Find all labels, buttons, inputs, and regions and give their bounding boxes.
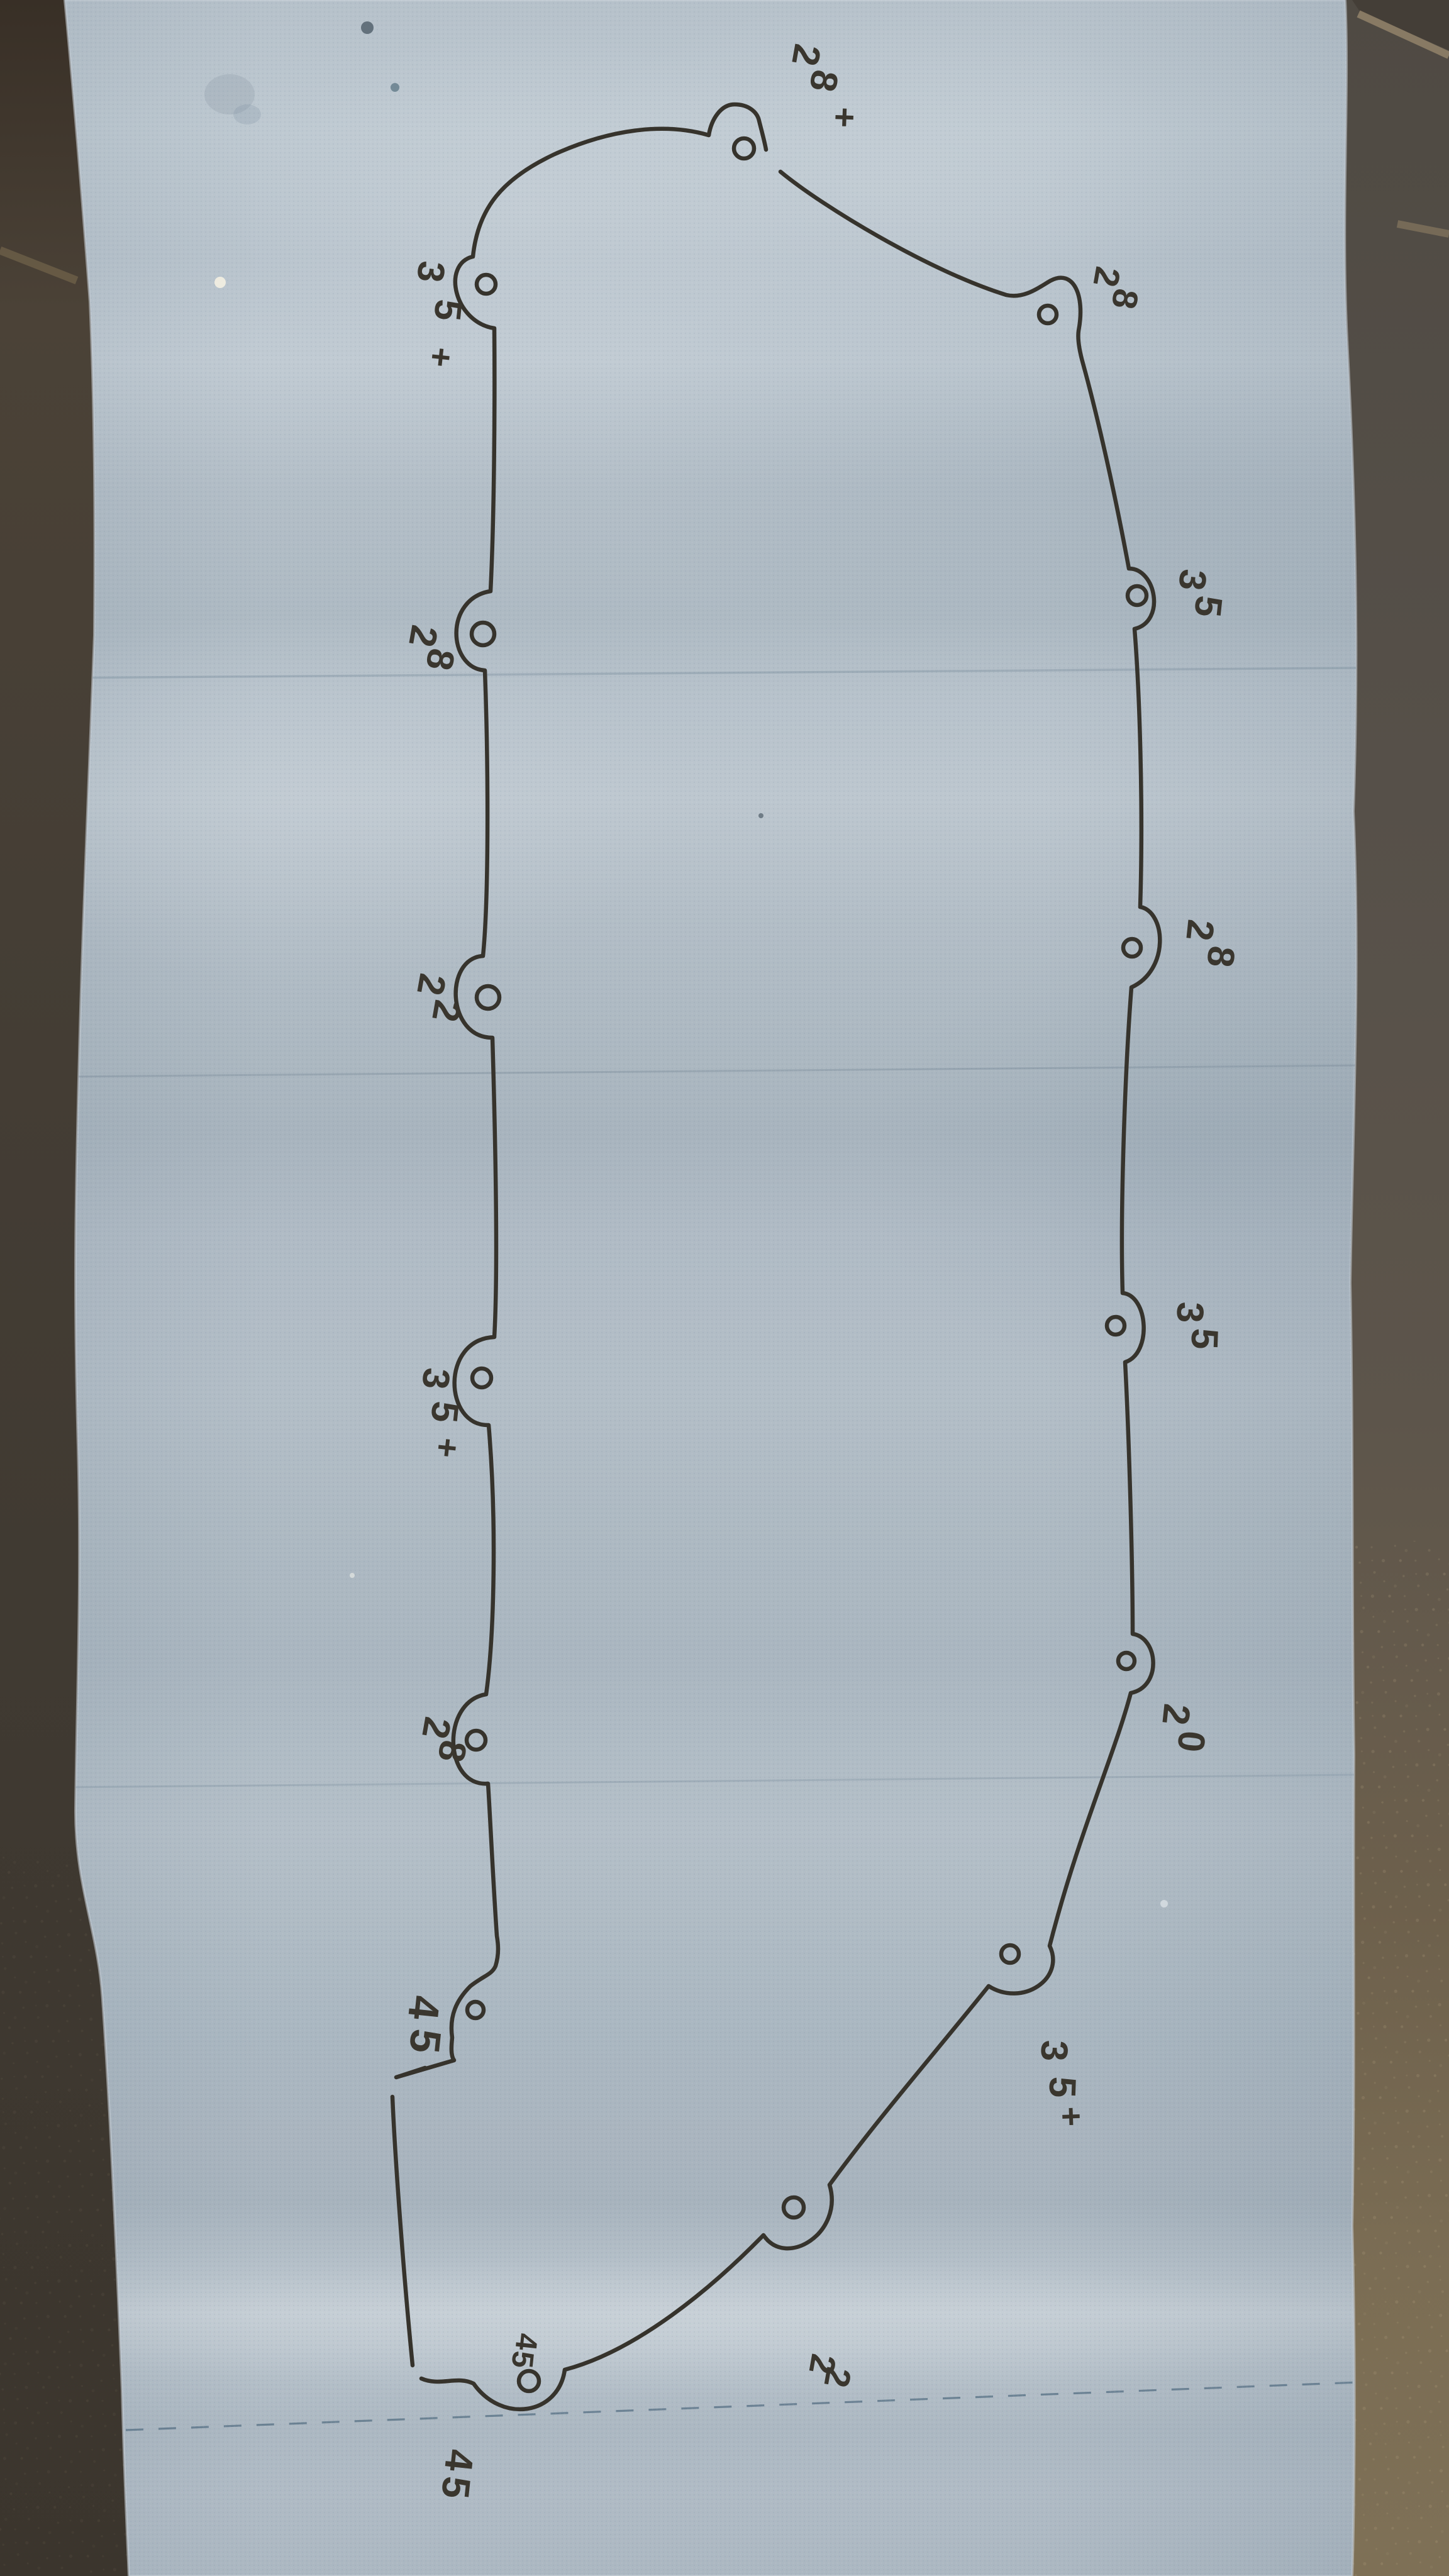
svg-text:3: 3 — [1033, 2040, 1075, 2062]
svg-text:3: 3 — [1170, 567, 1214, 592]
svg-text:+: + — [824, 106, 865, 128]
svg-text:5: 5 — [1183, 1328, 1226, 1350]
svg-text:5: 5 — [505, 2350, 540, 2370]
svg-text:5: 5 — [433, 2474, 478, 2501]
svg-text:5: 5 — [400, 2027, 450, 2056]
svg-text:+: + — [427, 1436, 467, 1460]
svg-text:0: 0 — [1169, 1729, 1213, 1754]
svg-text:2: 2 — [1178, 918, 1222, 943]
svg-text:5: 5 — [423, 1399, 467, 1424]
svg-text:+: + — [421, 345, 460, 369]
svg-text:3: 3 — [414, 1366, 458, 1391]
svg-text:2: 2 — [1154, 1702, 1198, 1727]
svg-text:5: 5 — [426, 297, 470, 323]
svg-text:3: 3 — [1169, 1301, 1211, 1324]
svg-text:4: 4 — [399, 1994, 449, 2023]
svg-text:5: 5 — [1041, 2076, 1084, 2099]
svg-text:5: 5 — [1186, 594, 1230, 619]
svg-text:3: 3 — [409, 259, 453, 284]
svg-text:8: 8 — [1199, 944, 1243, 969]
svg-text:+: + — [1052, 2106, 1090, 2128]
